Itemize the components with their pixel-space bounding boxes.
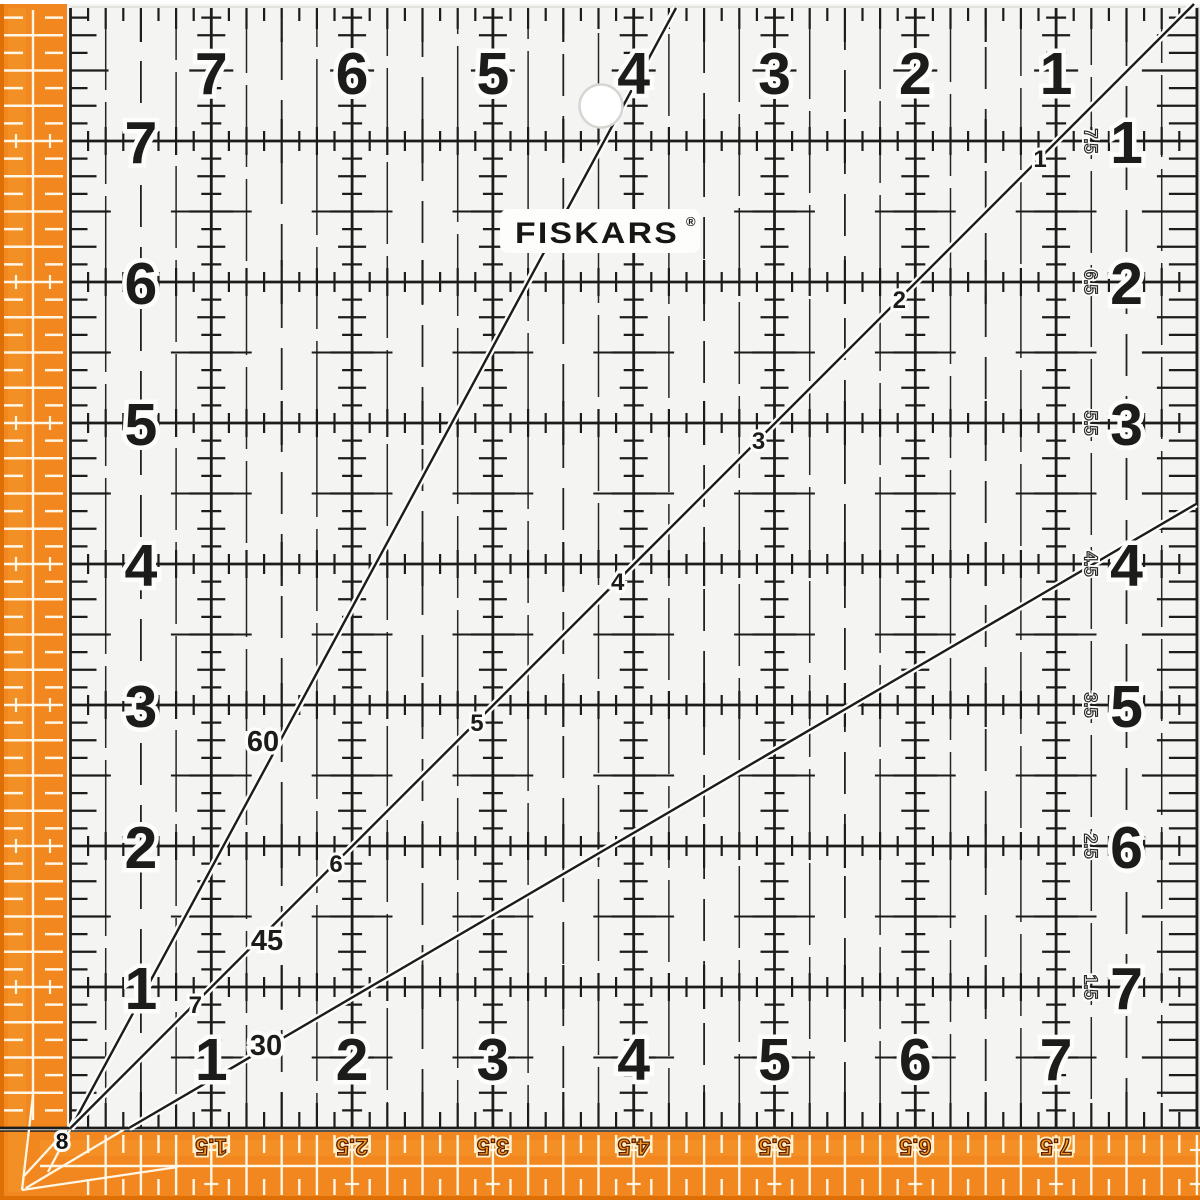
left-number: 1 <box>124 956 157 1022</box>
top-number: 6 <box>336 41 369 107</box>
angle-label-30: 30 <box>250 1030 282 1062</box>
top-number: 5 <box>476 41 509 107</box>
left-number: 7 <box>124 110 157 176</box>
bottom-number: 7 <box>1040 1027 1073 1093</box>
diagonal-inch-label: 4 <box>611 569 625 596</box>
top-number: 7 <box>195 41 228 107</box>
quilting-ruler-photo: 7162534435261771625344352617 60 45 30 8 … <box>0 0 1200 1200</box>
bottom-strip-label: 5.5 <box>758 1134 790 1160</box>
diagonal-inch-label: 1 <box>1033 146 1046 173</box>
diagonal-inch-label: 2 <box>893 287 906 314</box>
bottom-strip-label: 3.5 <box>477 1134 509 1160</box>
right-number: 5 <box>1110 674 1143 740</box>
bottom-strip-label: 2.5 <box>336 1134 368 1160</box>
diagonal-inch-label: 6 <box>329 851 342 878</box>
angle-label-60: 60 <box>247 726 279 758</box>
bottom-number: 2 <box>336 1027 369 1093</box>
right-number: 6 <box>1110 815 1143 881</box>
ruler-svg: 7162534435261771625344352617 60 45 30 8 … <box>0 0 1200 1200</box>
bottom-number: 3 <box>476 1027 509 1093</box>
bottom-strip-label: 4.5 <box>618 1134 650 1160</box>
corner-8-label: 8 <box>56 1128 69 1154</box>
bottom-strip-label: 6.5 <box>899 1134 931 1160</box>
right-number: 7 <box>1110 956 1143 1022</box>
right-number: 2 <box>1110 251 1143 317</box>
diagonal-inch-label: 7 <box>189 992 202 1019</box>
fiskars-logo-text: FISKARS <box>515 217 679 250</box>
diagonal-inch-label: 3 <box>752 428 765 455</box>
right-half-label: 7.5 <box>1081 128 1101 153</box>
right-half-label: 2.5 <box>1081 833 1101 858</box>
fiskars-logo: FISKARS ® <box>500 209 700 253</box>
bottom-strip-label: 7.5 <box>1040 1134 1072 1160</box>
hole-circle <box>580 85 623 128</box>
hanging-hole <box>580 85 623 128</box>
bottom-number: 1 <box>195 1027 228 1093</box>
top-number: 1 <box>1040 41 1073 107</box>
bottom-number: 4 <box>617 1027 650 1093</box>
left-number: 6 <box>124 251 157 317</box>
left-number: 4 <box>124 533 157 599</box>
right-number: 3 <box>1110 392 1143 458</box>
angle-label-45: 45 <box>251 925 283 957</box>
right-number: 1 <box>1110 110 1143 176</box>
top-number: 2 <box>899 41 932 107</box>
left-number: 3 <box>124 674 157 740</box>
right-half-label: 6.5 <box>1081 269 1101 294</box>
registered-mark: ® <box>686 214 696 229</box>
right-half-label: 4.5 <box>1081 551 1101 576</box>
top-number: 4 <box>617 41 650 107</box>
left-number: 2 <box>124 815 157 881</box>
bottom-number: 5 <box>758 1027 791 1093</box>
bottom-number: 6 <box>899 1027 932 1093</box>
right-half-label: 3.5 <box>1081 692 1101 717</box>
bottom-strip-label: 1.5 <box>195 1134 227 1160</box>
right-number: 4 <box>1110 533 1143 599</box>
right-half-label: 5.5 <box>1081 410 1101 435</box>
top-number: 3 <box>758 41 791 107</box>
left-number: 5 <box>124 392 157 458</box>
diagonal-inch-label: 5 <box>470 710 483 737</box>
right-half-label: 1.5 <box>1081 974 1101 999</box>
